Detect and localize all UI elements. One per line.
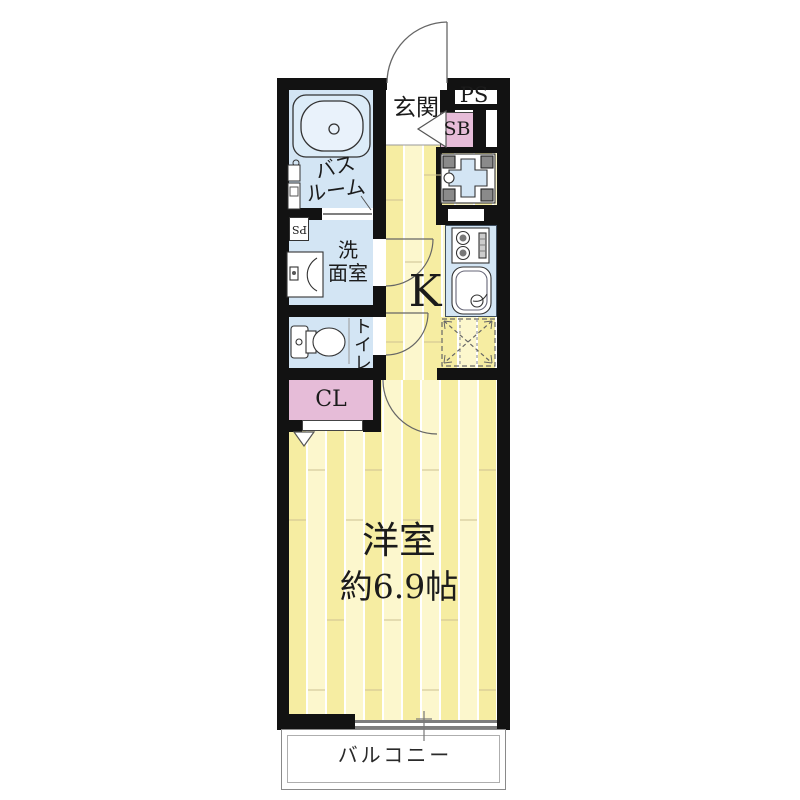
wall-bath-corridor	[373, 78, 386, 239]
pipe-space-small-box: PS	[289, 217, 309, 241]
kitchen-counter-area	[445, 225, 497, 317]
wall-bottom-left-block	[277, 714, 355, 730]
wall-counter-top-inset	[448, 209, 484, 221]
shoe-box-label: SB	[440, 120, 474, 139]
wall-left	[277, 78, 289, 730]
entrance-door-arc	[387, 22, 447, 83]
window-line-top	[355, 720, 497, 723]
closet-label: CL	[289, 389, 373, 411]
main-room-size-label: 約6.9帖	[319, 570, 479, 603]
wall-closet-left-jamb	[289, 420, 302, 432]
wall-ps-stub	[473, 110, 486, 148]
wall-room-door-band	[437, 368, 510, 380]
floorplan-canvas: PS	[0, 0, 800, 800]
wall-washroom-bottom	[277, 305, 386, 317]
washroom-label-line1: 洗	[321, 240, 375, 260]
main-room-label: 洋室	[329, 522, 469, 559]
wall-washerpan-left	[436, 153, 442, 205]
pipe-space-label: PS	[451, 85, 497, 106]
pipe-space-small-label: PS	[292, 224, 307, 235]
washer-area-floor	[437, 153, 497, 205]
entrance-label: 玄関	[387, 97, 445, 120]
wall-top-left	[277, 78, 387, 90]
balcony-label: バルコニー	[325, 745, 465, 765]
wall-right	[497, 78, 510, 730]
kitchen-label: K	[398, 270, 452, 314]
toilet-label: トイレ	[352, 317, 370, 373]
closet-door	[302, 420, 363, 431]
window-line-bottom	[355, 726, 497, 729]
fridge-area-floor	[440, 317, 497, 368]
washroom-label-line2: 面室	[321, 263, 375, 283]
wall-closet-right-jamb	[363, 420, 381, 432]
